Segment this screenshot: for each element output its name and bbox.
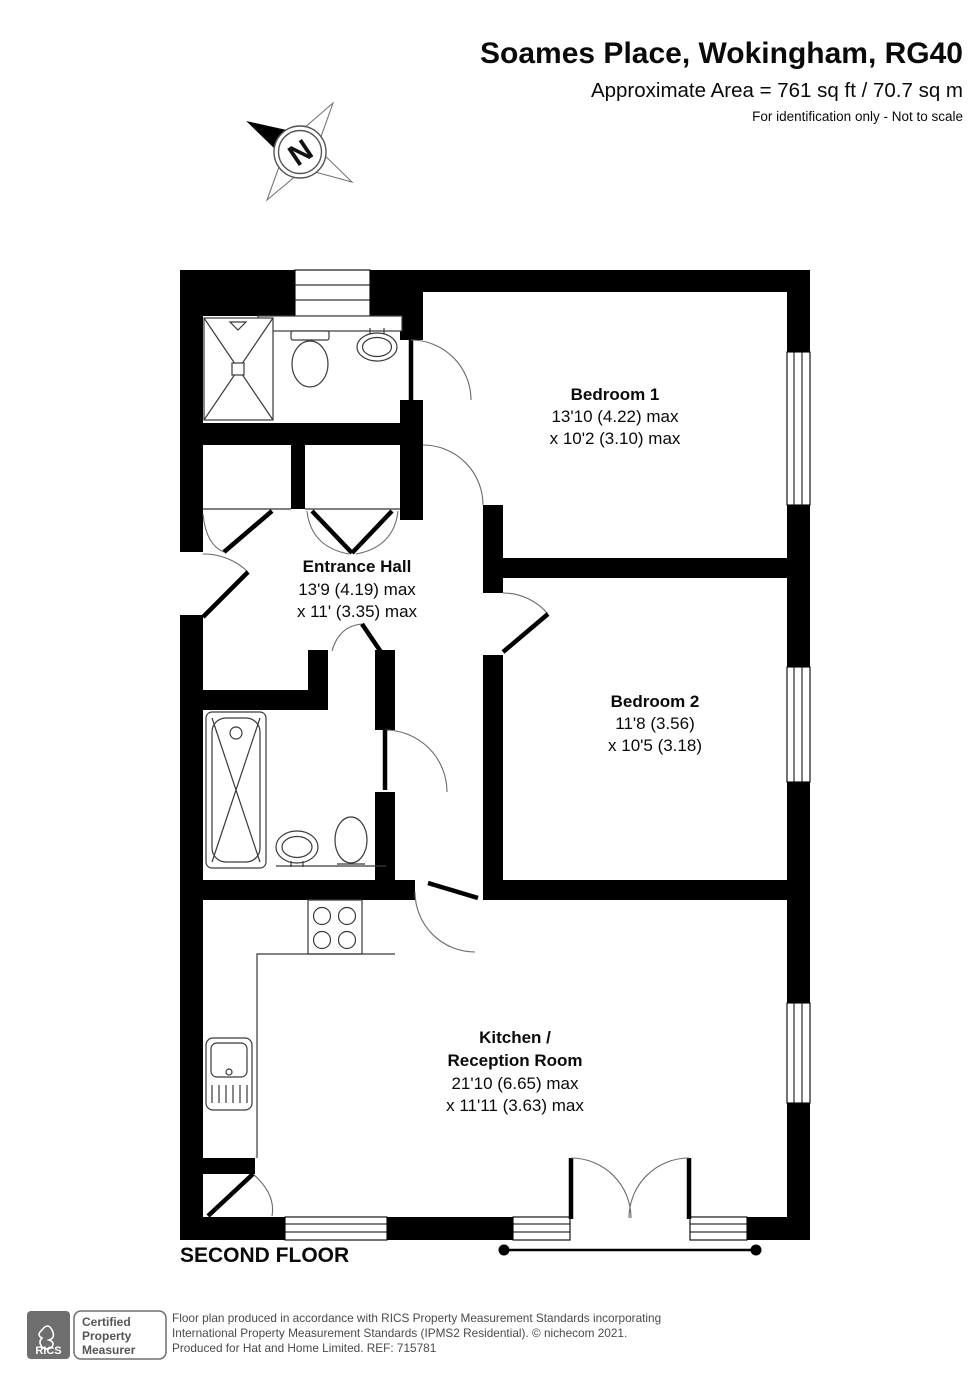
svg-text:13'10 (4.22) max: 13'10 (4.22) max — [551, 407, 679, 426]
toilet-2 — [335, 817, 367, 864]
approximate-area-text: Approximate Area = 761 sq ft / 70.7 sq m — [591, 79, 963, 102]
floor-label: SECOND FLOOR — [180, 1244, 349, 1267]
sink-2 — [276, 831, 318, 867]
svg-text:Bedroom 1: Bedroom 1 — [571, 385, 660, 404]
reception-left-window — [513, 1217, 570, 1240]
svg-text:Measurer: Measurer — [82, 1343, 136, 1357]
bedroom1-door — [423, 445, 483, 505]
front-door — [203, 554, 248, 617]
kitchen-bottom-window — [285, 1217, 387, 1240]
svg-text:11'8 (3.56): 11'8 (3.56) — [615, 714, 694, 733]
reception-right-window — [690, 1217, 747, 1240]
page-title: Soames Place, Wokingham, RG40 — [480, 37, 963, 70]
header: Soames Place, Wokingham, RG40 Approximat… — [480, 37, 963, 124]
kitchen-fixtures — [206, 900, 395, 1158]
bedroom2-door — [503, 593, 548, 652]
bathtub — [206, 712, 266, 868]
svg-text:Certified: Certified — [82, 1315, 131, 1329]
bathroom-door — [385, 730, 447, 792]
kitchen-counter-edge — [257, 954, 395, 1158]
toilet-1 — [291, 331, 329, 387]
room-label-bedroom2: Bedroom 2 11'8 (3.56) x 10'5 (3.18) — [608, 692, 702, 755]
svg-text:Bedroom 2: Bedroom 2 — [611, 692, 700, 711]
svg-text:Property: Property — [82, 1329, 132, 1343]
svg-text:x 10'5 (3.18): x 10'5 (3.18) — [608, 736, 702, 755]
svg-text:Kitchen /: Kitchen / — [479, 1028, 551, 1047]
shower-room-window — [295, 270, 370, 316]
kitchen-side-window — [787, 1003, 810, 1103]
bedroom1-window — [787, 352, 810, 505]
svg-text:Entrance Hall: Entrance Hall — [303, 557, 412, 576]
svg-text:Floor plan produced in accorda: Floor plan produced in accordance with R… — [172, 1311, 661, 1325]
windows — [285, 270, 810, 1240]
vanity-counter — [258, 316, 402, 331]
svg-text:x 11' (3.35) max: x 11' (3.35) max — [297, 602, 418, 621]
room-label-kitchen-reception: Kitchen / Reception Room 21'10 (6.65) ma… — [446, 1028, 584, 1115]
floorplan-canvas: Soames Place, Wokingham, RG40 Approximat… — [0, 0, 980, 1386]
kitchen-door — [415, 883, 478, 952]
disclaimer-text: For identification only - Not to scale — [752, 109, 963, 124]
closet-right-doors — [307, 511, 398, 554]
kitchen-sink — [206, 1038, 252, 1110]
svg-text:x 11'11 (3.63) max: x 11'11 (3.63) max — [446, 1096, 584, 1115]
closet-left-door — [203, 511, 272, 552]
bathroom-fixtures — [206, 712, 386, 868]
shower-tray — [204, 318, 273, 420]
bedroom2-window — [787, 667, 810, 782]
svg-text:International Property Measure: International Property Measurement Stand… — [172, 1326, 627, 1340]
svg-text:x 10'2 (3.10) max: x 10'2 (3.10) max — [550, 429, 681, 448]
rics-logo: RICS — [27, 1311, 70, 1359]
room-label-entrance-hall: Entrance Hall 13'9 (4.19) max x 11' (3.3… — [297, 557, 418, 621]
hob — [308, 900, 362, 954]
shower-room-door — [411, 340, 471, 400]
corner-cupboard-door — [208, 1174, 273, 1216]
room-label-bedroom1: Bedroom 1 13'10 (4.22) max x 10'2 (3.10)… — [550, 385, 681, 448]
footer-disclaimer: Floor plan produced in accordance with R… — [172, 1311, 661, 1355]
balcony-rail — [499, 1245, 762, 1256]
french-doors — [571, 1158, 689, 1219]
floorplan-page: Soames Place, Wokingham, RG40 Approximat… — [0, 0, 980, 1386]
svg-text:13'9 (4.19) max: 13'9 (4.19) max — [298, 580, 416, 599]
svg-text:21'10 (6.65) max: 21'10 (6.65) max — [451, 1074, 579, 1093]
compass-rose-icon: N — [248, 103, 352, 200]
certified-measurer-badge: Certified Property Measurer — [74, 1311, 166, 1359]
sink-1 — [357, 328, 397, 361]
doors — [203, 340, 689, 1219]
rics-label: RICS — [35, 1345, 61, 1357]
svg-text:Reception Room: Reception Room — [447, 1051, 582, 1070]
shower-room-fixtures — [204, 316, 402, 420]
footer: RICS Certified Property Measurer Floor p… — [27, 1311, 661, 1359]
svg-text:Produced for Hat and Home Limi: Produced for Hat and Home Limited. REF: … — [172, 1341, 436, 1355]
